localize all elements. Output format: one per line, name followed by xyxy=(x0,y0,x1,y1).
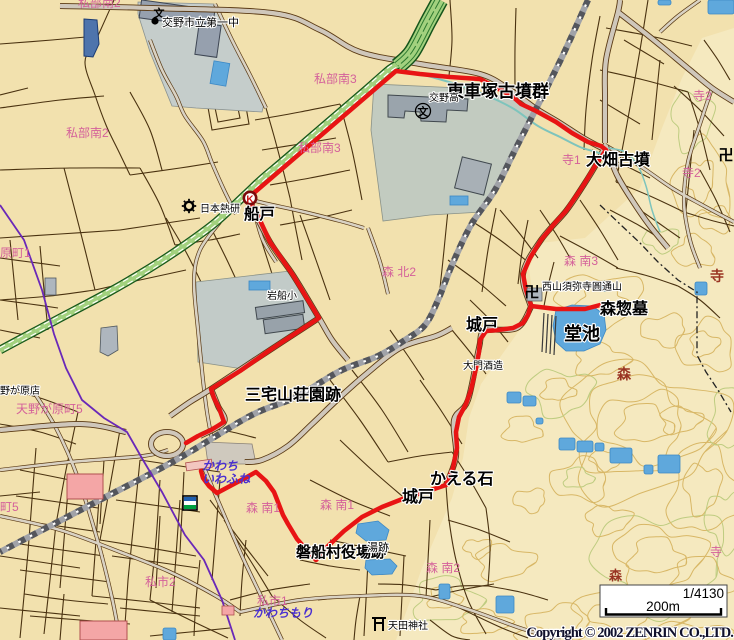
svg-text:卍: 卍 xyxy=(718,147,733,164)
svg-text:森: 森 xyxy=(617,366,632,382)
svg-text:寺: 寺 xyxy=(710,268,724,284)
svg-text:原町1: 原町1 xyxy=(0,246,31,260)
svg-text:東車塚古墳群: 東車塚古墳群 xyxy=(447,81,549,101)
svg-text:大畑古墳: 大畑古墳 xyxy=(586,150,650,169)
svg-text:私市2: 私市2 xyxy=(145,574,176,589)
svg-text:天田神社: 天田神社 xyxy=(388,619,428,632)
svg-text:大門酒造: 大門酒造 xyxy=(463,359,503,372)
svg-text:かわちもり: かわちもり xyxy=(253,606,313,620)
svg-text:K: K xyxy=(246,195,254,206)
svg-text:野が原店: 野が原店 xyxy=(0,384,40,397)
svg-text:交野市立第一中: 交野市立第一中 xyxy=(162,15,239,29)
svg-text:森 南3: 森 南3 xyxy=(564,253,598,268)
svg-text:かえる石: かえる石 xyxy=(430,470,494,488)
svg-text:200m: 200m xyxy=(646,599,680,614)
svg-text:森 南1: 森 南1 xyxy=(246,500,280,515)
svg-text:卍: 卍 xyxy=(524,284,539,301)
svg-text:森 南1: 森 南1 xyxy=(320,497,354,512)
svg-text:私部南2: 私部南2 xyxy=(78,0,121,10)
svg-text:かわち: かわち xyxy=(202,459,238,473)
svg-text:森 南2: 森 南2 xyxy=(426,560,460,575)
svg-text:交野高: 交野高 xyxy=(429,91,459,104)
svg-text:寺: 寺 xyxy=(710,545,722,559)
svg-text:西山須弥寺圓通山: 西山須弥寺圓通山 xyxy=(542,280,622,293)
svg-text:私部南2: 私部南2 xyxy=(66,125,109,140)
svg-text:森惣墓: 森惣墓 xyxy=(600,299,649,318)
svg-text:船戸: 船戸 xyxy=(244,204,275,223)
svg-text:寺2: 寺2 xyxy=(693,89,712,103)
svg-text:寺2: 寺2 xyxy=(682,166,701,180)
svg-text:三宅山荘園跡: 三宅山荘園跡 xyxy=(245,385,341,404)
svg-text:文: 文 xyxy=(418,105,430,119)
svg-text:日本熱研: 日本熱研 xyxy=(200,202,240,215)
svg-text:湯跡: 湯跡 xyxy=(367,540,389,554)
svg-text:森: 森 xyxy=(609,568,623,583)
svg-text:いわふね: いわふね xyxy=(202,472,251,486)
svg-text:城戸: 城戸 xyxy=(402,488,434,506)
svg-text:町5: 町5 xyxy=(0,500,19,514)
svg-text:1/4130: 1/4130 xyxy=(683,586,724,601)
svg-text:森 北2: 森 北2 xyxy=(382,264,416,279)
svg-text:天野が原町5: 天野が原町5 xyxy=(16,401,83,416)
svg-text:私部南3: 私部南3 xyxy=(314,71,357,86)
svg-text:Copyright © 2002 ZENRIN CO.,LT: Copyright © 2002 ZENRIN CO.,LTD. xyxy=(526,625,733,640)
svg-text:城戸: 城戸 xyxy=(466,316,498,334)
svg-text:堂池: 堂池 xyxy=(564,323,600,344)
svg-text:寺1: 寺1 xyxy=(562,153,581,167)
svg-text:私部南3: 私部南3 xyxy=(298,140,341,155)
svg-text:岩船小: 岩船小 xyxy=(267,289,297,302)
